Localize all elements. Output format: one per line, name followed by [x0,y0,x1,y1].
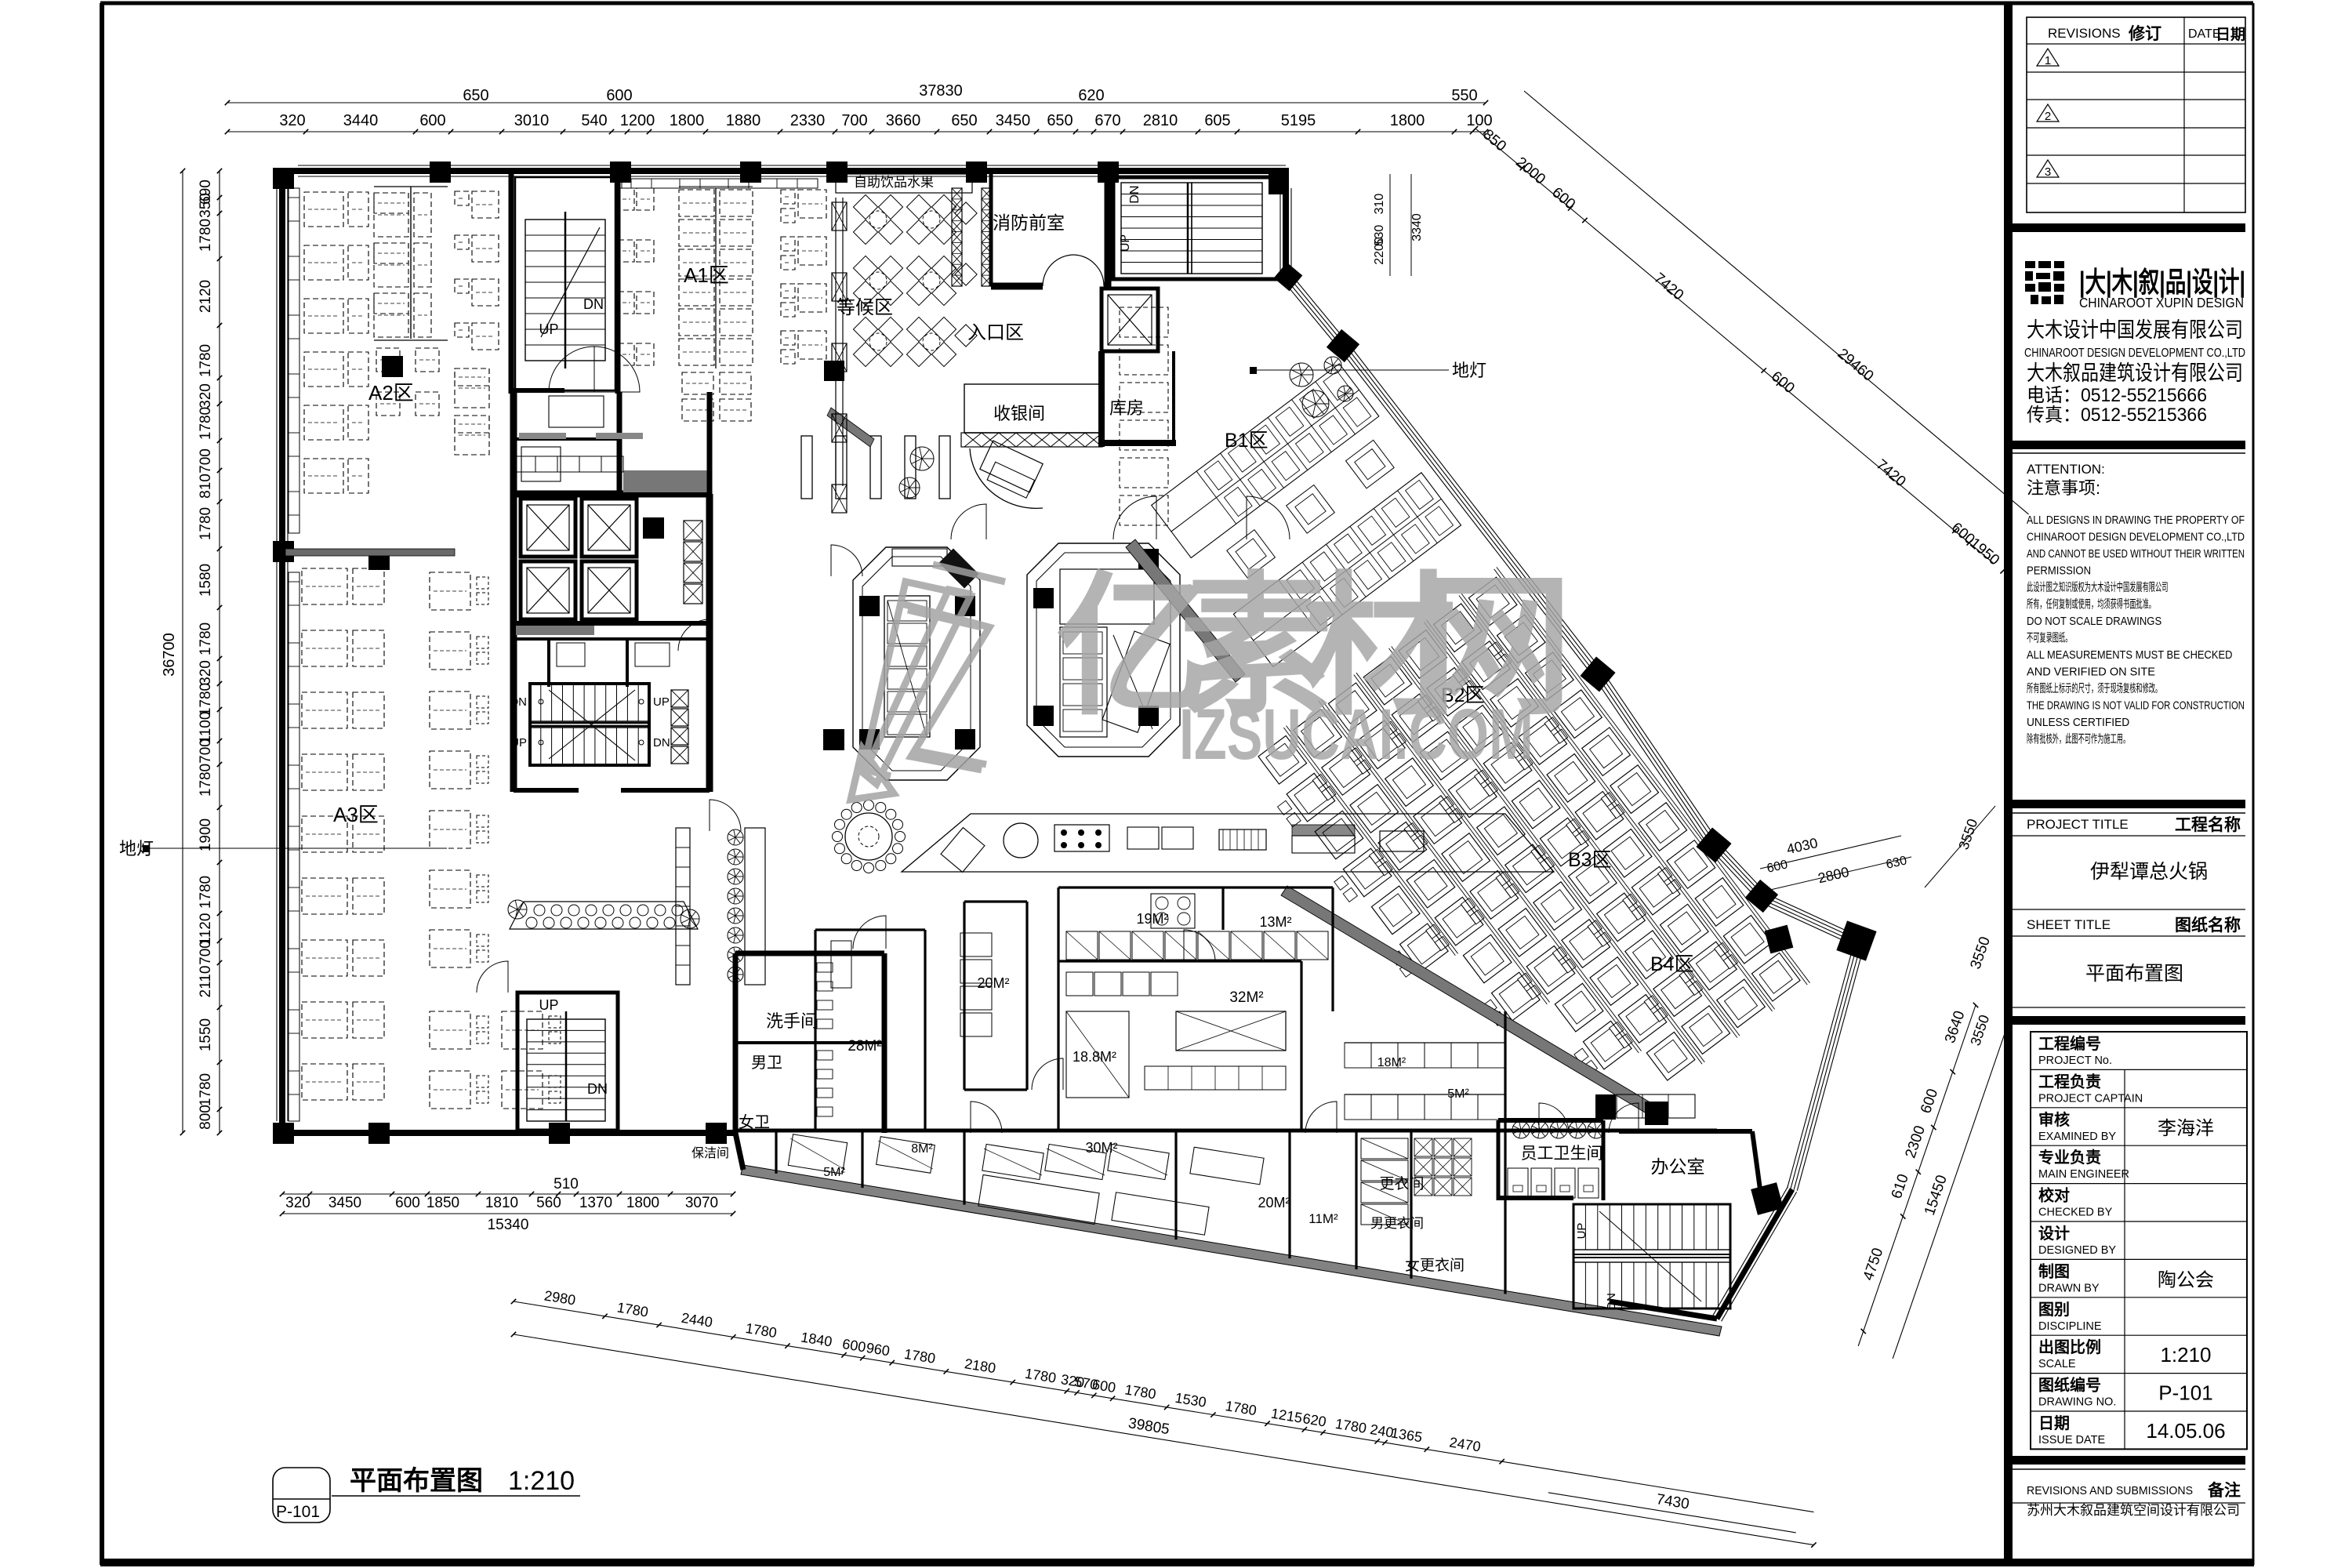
svg-text:510: 510 [554,1176,579,1192]
svg-text:1800: 1800 [670,112,705,129]
svg-text:AND CANNOT BE USED WITHOUT THE: AND CANNOT BE USED WITHOUT THEIR WRITTEN [2027,548,2245,561]
svg-text:A3区: A3区 [333,803,379,826]
svg-text:图别: 图别 [2038,1301,2070,1319]
svg-text:工程负责: 工程负责 [2038,1072,2101,1091]
svg-text:1780: 1780 [198,683,214,716]
svg-text:1780: 1780 [198,876,214,909]
svg-text:560: 560 [536,1195,561,1211]
svg-text:修订: 修订 [2128,24,2161,43]
svg-text:MAIN ENGINEER: MAIN ENGINEER [2038,1168,2129,1181]
svg-text:28M²: 28M² [848,1038,881,1054]
svg-text:苏州大木叙品建筑空间设计有限公司: 苏州大木叙品建筑空间设计有限公司 [2027,1503,2240,1518]
svg-text:8M²: 8M² [911,1142,933,1156]
svg-text:DN: DN [587,1081,608,1097]
svg-text:1580: 1580 [198,564,214,597]
svg-text:UP: UP [539,321,558,337]
svg-text:审核: 审核 [2038,1110,2070,1129]
svg-text:CHINAROOT XUPIN DESIGN: CHINAROOT XUPIN DESIGN [2079,295,2244,310]
svg-text:日期: 日期 [2216,26,2245,43]
svg-text:CHINAROOT DESIGN DEVELOPMENT C: CHINAROOT DESIGN DEVELOPMENT CO.,LTD [2024,347,2245,360]
svg-text:入口区: 入口区 [967,322,1024,343]
svg-text:20M²: 20M² [1258,1195,1290,1210]
svg-text:UP: UP [1119,234,1132,252]
svg-text:库房: 库房 [1109,398,1144,418]
svg-text:1780: 1780 [198,1073,214,1106]
svg-text:1900: 1900 [198,818,214,851]
svg-text:出图比例: 出图比例 [2038,1338,2101,1356]
svg-text:平面布置图: 平面布置图 [350,1466,483,1496]
svg-text:EXAMINED BY: EXAMINED BY [2038,1131,2116,1143]
svg-text:100: 100 [1466,112,1492,129]
svg-text:ALL MEASUREMENTS MUST BE CHECK: ALL MEASUREMENTS MUST BE CHECKED [2027,649,2232,662]
svg-text:3440: 3440 [343,112,379,129]
svg-text:伊犁谭总火锅: 伊犁谭总火锅 [2090,861,2208,883]
svg-text:1:210: 1:210 [508,1466,575,1496]
svg-text:DESIGNED BY: DESIGNED BY [2038,1244,2116,1257]
svg-text:|大|木|叙|品|设|计|: |大|木|叙|品|设|计| [2079,266,2245,299]
svg-text:DN: DN [1605,1293,1618,1310]
svg-text:等候区: 等候区 [837,297,893,318]
svg-text:3070: 3070 [685,1195,718,1211]
svg-text:更衣间: 更衣间 [1379,1175,1424,1192]
svg-text:5195: 5195 [1281,112,1316,129]
svg-text:工程编号: 工程编号 [2038,1034,2101,1053]
svg-text:1800: 1800 [1390,112,1425,129]
svg-text:THE DRAWING IS NOT VALID FOR C: THE DRAWING IS NOT VALID FOR CONSTRUCTIO… [2027,700,2245,713]
svg-text:1850: 1850 [426,1195,459,1211]
svg-text:1780: 1780 [198,344,214,377]
svg-text:DN: DN [510,695,527,709]
svg-text:1: 1 [2045,54,2051,67]
svg-text:UP: UP [653,695,670,709]
svg-text:320: 320 [285,1195,310,1211]
svg-text:5M²: 5M² [1447,1087,1469,1101]
svg-text:2810: 2810 [1143,112,1178,129]
svg-text:3: 3 [2045,165,2051,179]
svg-text:男更衣间: 男更衣间 [1370,1216,1424,1231]
svg-text:消防前室: 消防前室 [993,212,1065,233]
svg-text:620: 620 [1078,87,1104,104]
svg-text:DN: DN [653,736,670,750]
svg-text:2330: 2330 [790,112,826,129]
svg-text:此设计图之知识版权为大木设计中国发展有限公司: 此设计图之知识版权为大木设计中国发展有限公司 [2027,581,2168,594]
svg-text:20M²: 20M² [977,975,1009,991]
svg-text:UNLESS CERTIFIED: UNLESS CERTIFIED [2027,717,2129,729]
svg-text:女更衣间: 女更衣间 [1405,1257,1465,1274]
svg-text:5M²: 5M² [823,1166,845,1179]
svg-text:地灯: 地灯 [1452,361,1486,380]
svg-text:700: 700 [198,448,214,474]
svg-text:310: 310 [1373,194,1386,215]
svg-text:专业负责: 专业负责 [2038,1148,2101,1167]
svg-text:所有图纸上标示的尺寸，须于现场复核和修改。: 所有图纸上标示的尺寸，须于现场复核和修改。 [2027,681,2161,695]
svg-text:3450: 3450 [328,1195,361,1211]
svg-text:600: 600 [419,112,445,129]
svg-text:陶公会: 陶公会 [2158,1269,2214,1290]
svg-text:1800: 1800 [626,1195,659,1211]
svg-text:注意事项:: 注意事项: [2027,478,2100,498]
svg-text:DISCIPLINE: DISCIPLINE [2038,1320,2102,1333]
svg-text:男卫: 男卫 [751,1054,782,1072]
svg-text:DO NOT SCALE DRAWINGS: DO NOT SCALE DRAWINGS [2027,615,2161,628]
svg-text:B3区: B3区 [1568,849,1612,871]
svg-text:2110: 2110 [198,966,214,998]
svg-text:日期: 日期 [2038,1414,2070,1432]
svg-text:REVISIONS AND SUBMISSIONS: REVISIONS AND SUBMISSIONS [2027,1484,2193,1497]
svg-text:3340: 3340 [1410,213,1424,241]
svg-text:1780: 1780 [198,622,214,655]
svg-text:700: 700 [198,739,214,764]
svg-text:1200: 1200 [620,112,655,129]
svg-text:1370: 1370 [579,1195,612,1211]
svg-text:550: 550 [1451,87,1477,104]
svg-text:1550: 1550 [198,1018,214,1051]
svg-text:605: 605 [1204,112,1230,129]
svg-text:ISSUE DATE: ISSUE DATE [2038,1434,2105,1446]
svg-text:320: 320 [198,660,214,685]
svg-text:1780: 1780 [198,764,214,797]
svg-text:图纸编号: 图纸编号 [2038,1376,2101,1395]
svg-text:SHEET TITLE: SHEET TITLE [2027,917,2111,932]
svg-text:650: 650 [951,112,977,129]
svg-text:保洁间: 保洁间 [691,1146,729,1160]
svg-text:图纸名称: 图纸名称 [2175,916,2241,935]
svg-text:19M²: 19M² [1136,911,1168,927]
svg-text:UP: UP [539,997,558,1013]
svg-text:CHINAROOT DESIGN DEVELOPMENT C: CHINAROOT DESIGN DEVELOPMENT CO.,LTD [2027,532,2245,544]
svg-text:3660: 3660 [886,112,921,129]
svg-text:ATTENTION:: ATTENTION: [2027,462,2105,477]
svg-text:810: 810 [198,474,214,499]
svg-text:1780: 1780 [198,219,214,252]
svg-text:2120: 2120 [198,280,214,313]
svg-text:员工卫生间: 员工卫生间 [1521,1145,1603,1163]
svg-text:650: 650 [1047,112,1073,129]
svg-text:11M²: 11M² [1308,1211,1338,1226]
svg-text:UP: UP [510,736,527,750]
svg-text:工程名称: 工程名称 [2175,815,2241,834]
svg-text:B4区: B4区 [1650,953,1694,975]
svg-text:电话：0512-55215666: 电话：0512-55215666 [2027,385,2207,406]
svg-text:传真：0512-55215366: 传真：0512-55215366 [2027,405,2207,426]
svg-text:320: 320 [279,112,305,129]
svg-text:1780: 1780 [198,407,214,440]
svg-text:大木设计中国发展有限公司: 大木设计中国发展有限公司 [2027,318,2243,342]
svg-text:18.8M²: 18.8M² [1073,1049,1116,1065]
svg-text:18M²: 18M² [1377,1056,1406,1069]
svg-text:AND VERIFIED ON SITE: AND VERIFIED ON SITE [2027,666,2155,679]
svg-text:700: 700 [841,112,867,129]
svg-text:540: 540 [581,112,607,129]
svg-text:B1区: B1区 [1225,430,1269,452]
svg-text:3450: 3450 [996,112,1031,129]
svg-text:P-101: P-101 [276,1503,320,1521]
svg-text:ALL DESIGNS IN DRAWING THE PRO: ALL DESIGNS IN DRAWING THE PROPERTY OF [2027,514,2245,527]
svg-text:320: 320 [198,383,214,408]
svg-text:SCALE: SCALE [2038,1358,2076,1370]
svg-text:洗手间: 洗手间 [766,1011,818,1031]
svg-text:收银间: 收银间 [993,404,1045,423]
svg-text:PROJECT TITLE: PROJECT TITLE [2027,817,2129,832]
svg-text:PROJECT CAPTAIN: PROJECT CAPTAIN [2038,1092,2143,1105]
svg-text:2200: 2200 [1373,237,1386,265]
svg-text:600: 600 [606,87,632,104]
svg-text:设计: 设计 [2038,1225,2070,1243]
svg-text:A2区: A2区 [368,381,414,405]
svg-text:650: 650 [463,87,488,104]
svg-text:800: 800 [198,1105,214,1130]
svg-text:DRAWING NO.: DRAWING NO. [2038,1396,2116,1409]
svg-text:13M²: 13M² [1259,914,1291,930]
svg-text:制图: 制图 [2038,1262,2070,1280]
svg-text:备注: 备注 [2207,1481,2241,1500]
svg-text:30M²: 30M² [1085,1140,1117,1156]
svg-text:37830: 37830 [919,82,963,100]
svg-text:2: 2 [2045,110,2051,123]
svg-text:700: 700 [198,940,214,965]
svg-text:校对: 校对 [2038,1186,2070,1205]
svg-text:PERMISSION: PERMISSION [2027,565,2091,578]
svg-text:1:210: 1:210 [2160,1343,2211,1367]
svg-text:不可复录图纸。: 不可复录图纸。 [2027,631,2071,645]
svg-text:A1区: A1区 [684,263,729,287]
svg-text:1880: 1880 [726,112,761,129]
svg-text:1780: 1780 [198,507,214,540]
svg-text:办公室: 办公室 [1651,1156,1705,1177]
svg-text:平面布置图: 平面布置图 [2085,963,2183,985]
svg-text:32M²: 32M² [1229,989,1263,1006]
svg-text:自助饮品水果: 自助饮品水果 [854,175,934,190]
svg-text:670: 670 [1094,112,1120,129]
svg-text:UP: UP [1575,1223,1588,1240]
svg-text:P-101: P-101 [2158,1381,2212,1405]
svg-text:1810: 1810 [485,1195,518,1211]
svg-text:350: 350 [198,193,214,218]
svg-text:除有批核外，此图不可作为施工用。: 除有批核外，此图不可作为施工用。 [2027,733,2129,746]
svg-text:600: 600 [395,1195,420,1211]
svg-text:PROJECT No.: PROJECT No. [2038,1054,2112,1067]
svg-text:DN: DN [583,296,604,312]
svg-text:DRAWN BY: DRAWN BY [2038,1282,2100,1294]
svg-text:李海洋: 李海洋 [2158,1118,2214,1139]
svg-text:所有，任何复制或使用，均须获得书面批准。: 所有，任何复制或使用，均须获得书面批准。 [2027,597,2155,612]
svg-text:CHECKED BY: CHECKED BY [2038,1207,2113,1219]
svg-text:15340: 15340 [488,1217,529,1233]
svg-text:大木叙品建筑设计有限公司: 大木叙品建筑设计有限公司 [2027,361,2243,385]
svg-text:DN: DN [1128,185,1142,203]
svg-text:3010: 3010 [514,112,550,129]
svg-text:14.05.06: 14.05.06 [2146,1419,2225,1443]
svg-text:REVISIONS: REVISIONS [2048,26,2121,41]
svg-text:36700: 36700 [161,633,178,677]
svg-text:IZSUCAI.COM: IZSUCAI.COM [1179,695,1534,775]
